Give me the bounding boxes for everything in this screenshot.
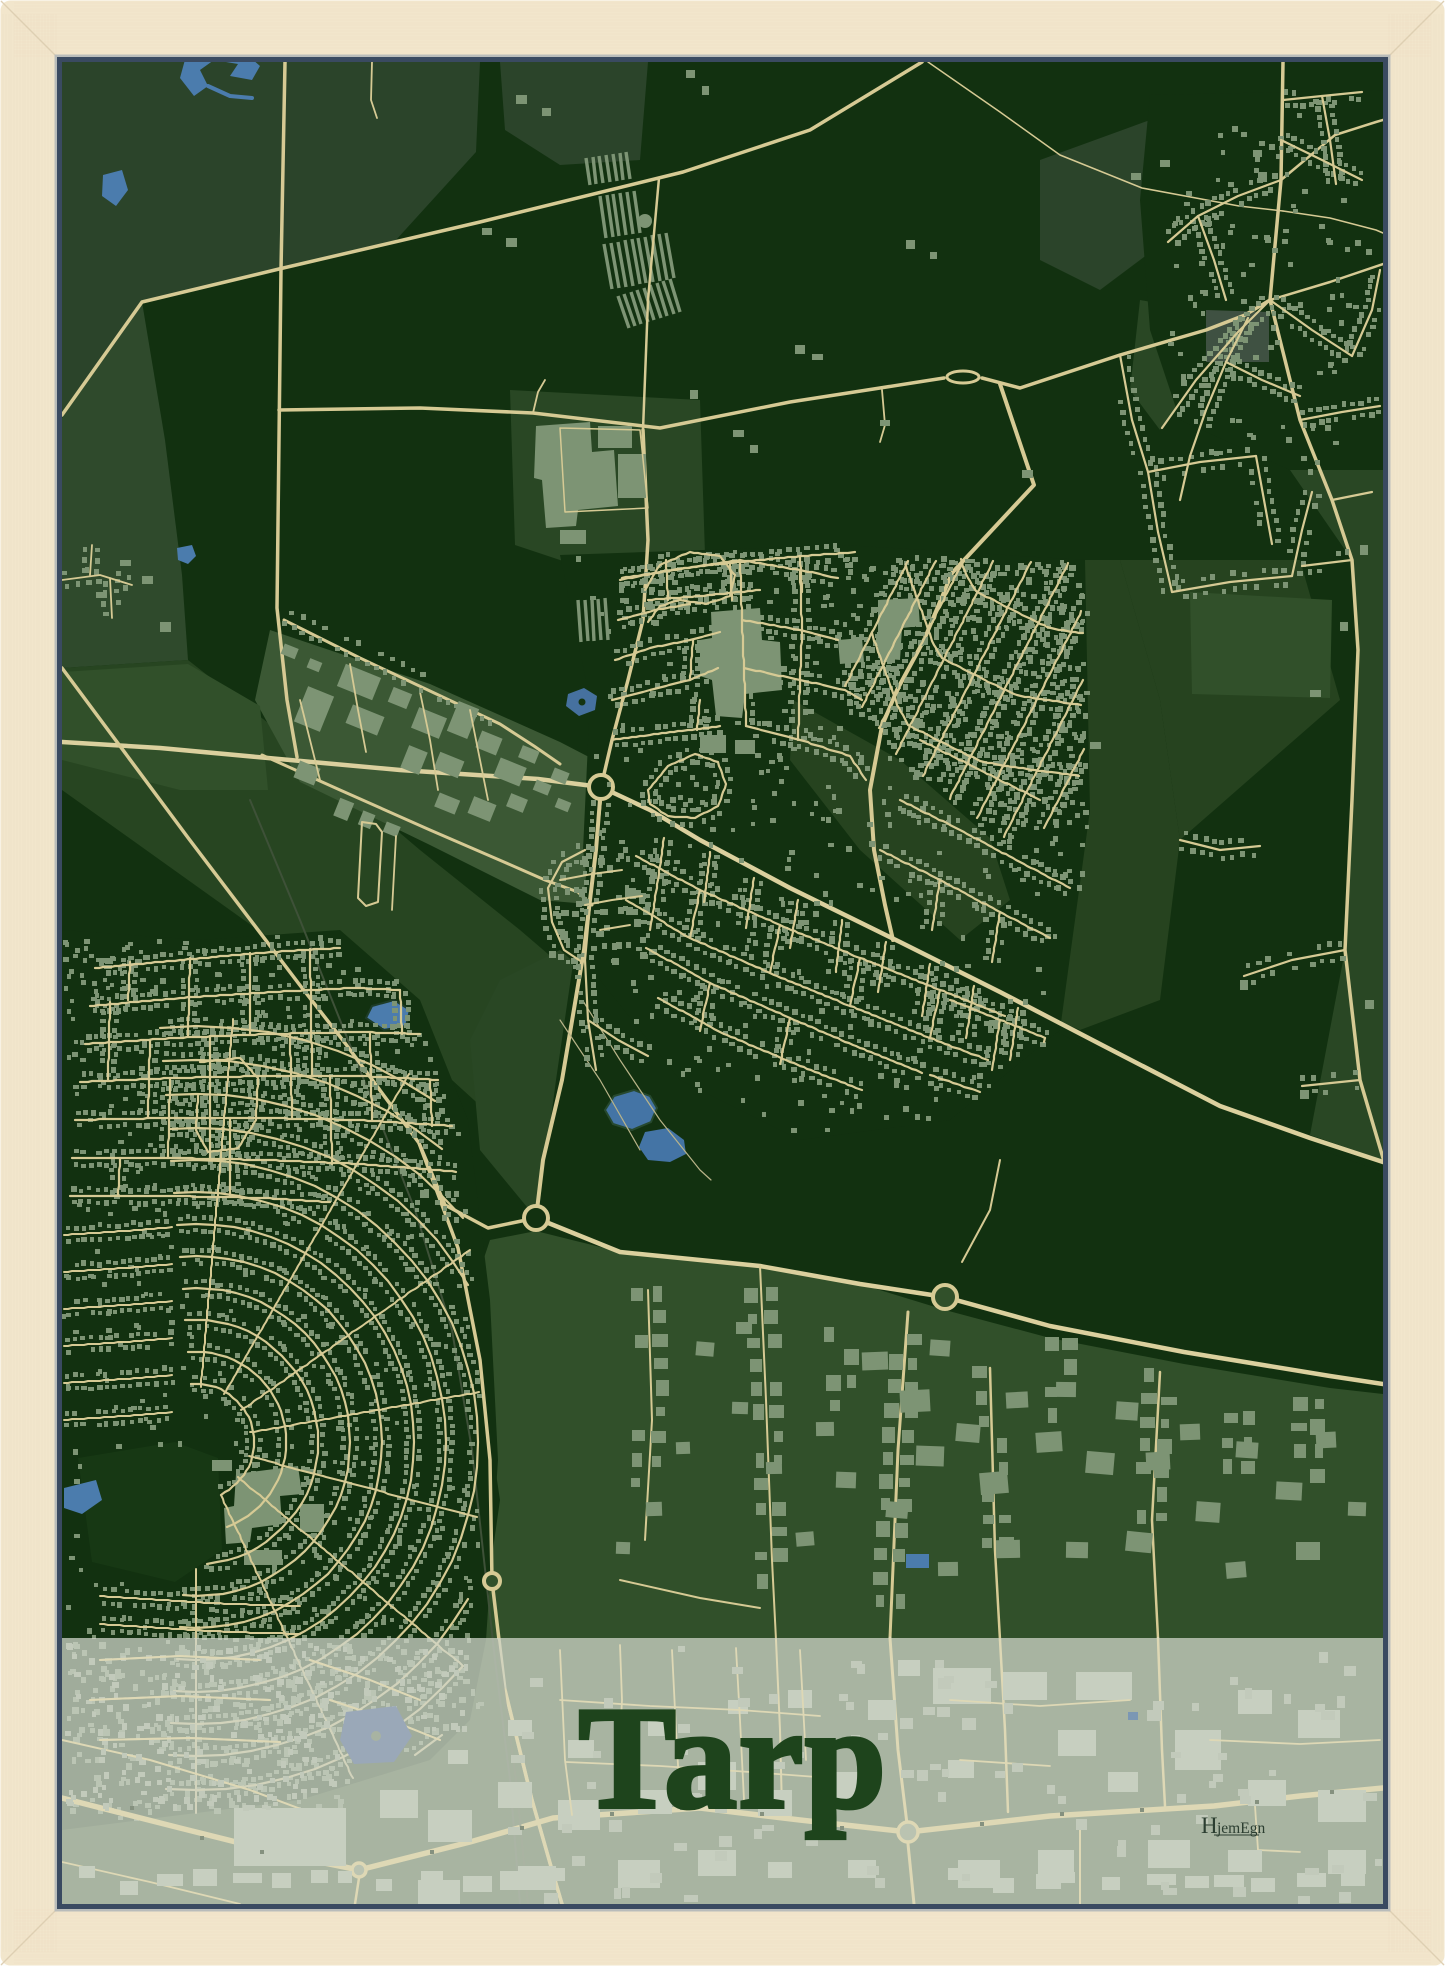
- svg-text:H: H: [1201, 1813, 1218, 1838]
- svg-text:jemEgn: jemEgn: [1216, 1820, 1265, 1837]
- svg-text:Tarp: Tarp: [579, 1677, 888, 1839]
